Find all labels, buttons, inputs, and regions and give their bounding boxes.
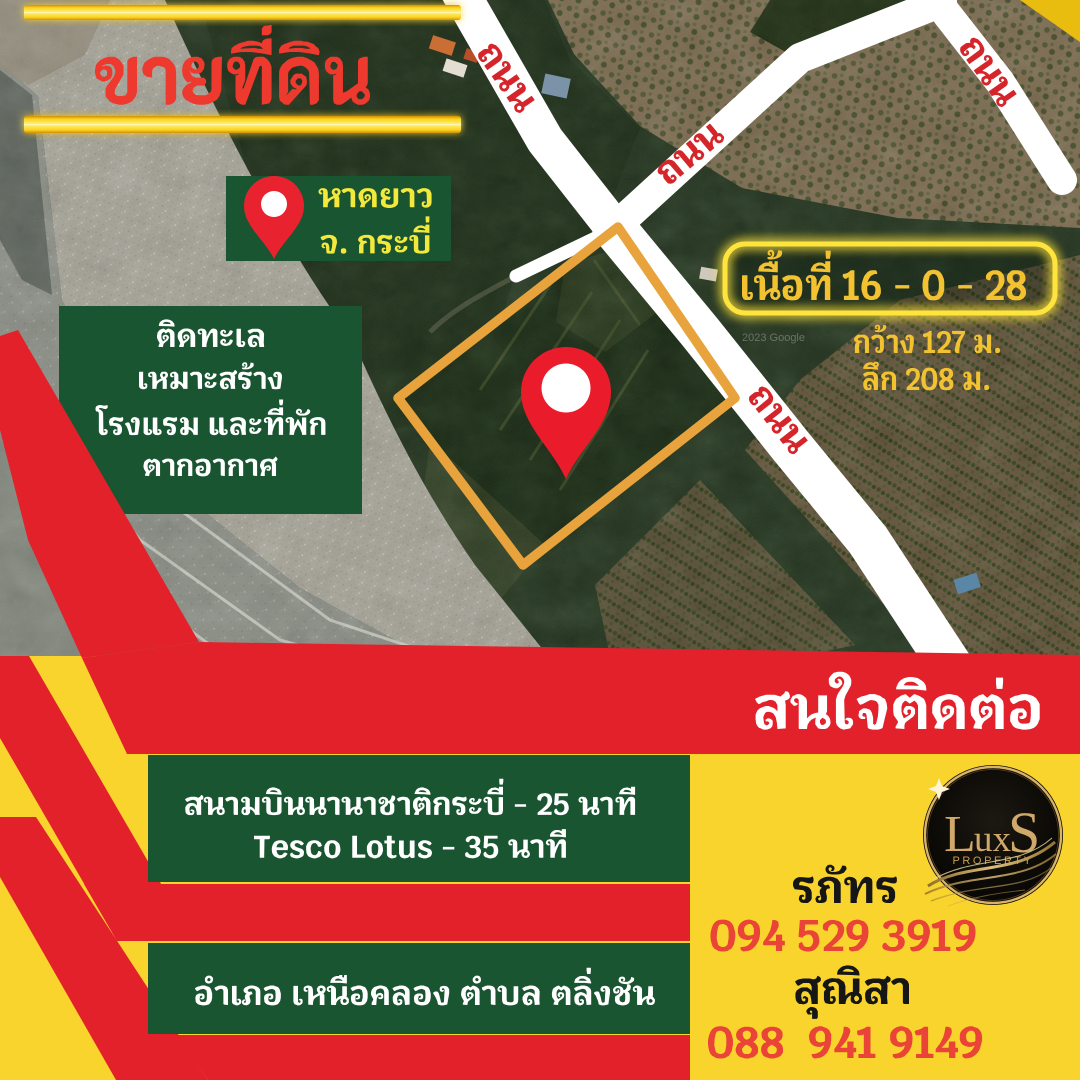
svg-text:ux: ux [974, 819, 1012, 860]
svg-text:2023 Google: 2023 Google [742, 332, 805, 344]
